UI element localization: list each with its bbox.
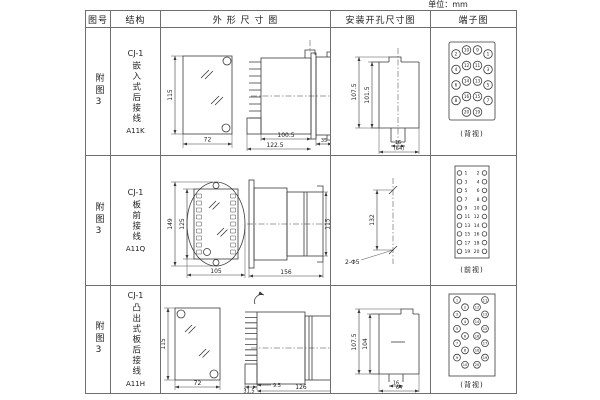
row1-structure: CJ-1 嵌入式后接线 A11K [111, 28, 161, 156]
type-code: A11H [126, 380, 145, 388]
view-label: (前视) [460, 265, 483, 274]
dim-cut-outer: 107.5 [351, 333, 358, 350]
row1-install-cell: 107.5 101.5 16 (64) [331, 28, 431, 156]
terminal-number: 11 [465, 214, 471, 220]
datasheet-page: 单位：mm 图号 结构 外 形 尺 寸 图 安装开孔尺寸图 端子图 附图3 CJ… [0, 0, 600, 400]
row1-terminal-cell: (背视) 246810121416209111315191357 [431, 28, 516, 156]
dim-front-height: 115 [161, 338, 167, 350]
terminal-number: 14 [464, 78, 470, 83]
terminal-diagram-a11q: (前视) 1234567891011121314151617181920 [431, 156, 516, 286]
terminal-number: 2 [477, 170, 480, 176]
terminal-circle [457, 188, 462, 193]
terminal-number: 19 [465, 249, 471, 255]
row1-fig-no: 附图3 [86, 28, 111, 156]
terminal-number: 5 [465, 188, 468, 194]
terminal-number: 15 [465, 231, 471, 237]
front-view-body [183, 56, 232, 134]
terminal-number: 17 [465, 240, 471, 246]
dim-cut-width: (64) [393, 146, 403, 152]
terminal-circle [482, 196, 487, 201]
terminal-circle [482, 205, 487, 210]
terminal-number: 18 [475, 349, 480, 353]
comb-base [245, 364, 257, 384]
terminal-number: 20 [475, 363, 480, 367]
terminal-circle [482, 249, 487, 254]
row3-fig-no: 附图3 [86, 286, 111, 393]
dim-cut-outer: 107.5 [351, 83, 358, 100]
screw-hole [213, 182, 219, 188]
outline-drawing-a11k: 115 72 100.5 122.5 35 [161, 28, 331, 156]
terminal-number: 20 [464, 109, 470, 114]
terminal-plate [449, 294, 495, 376]
type-code: A11K [126, 127, 144, 135]
terminal-number: 1 [465, 170, 468, 176]
terminal-circle [482, 179, 487, 184]
terminal-number: 13 [483, 313, 488, 317]
terminal-circle [457, 240, 462, 245]
terminal-number: 2 [455, 51, 458, 56]
row2-structure: CJ-1 板前接线 A11Q [111, 156, 161, 286]
terminal-number: 13 [475, 78, 481, 83]
screw-hole [177, 310, 185, 318]
dim-body-depth: 100.5 [277, 132, 294, 139]
terminal-number: 7 [487, 98, 490, 103]
terminal-number: 18 [474, 240, 480, 246]
screw-hole [203, 248, 210, 255]
terminal-number: 3 [456, 313, 458, 317]
dimension-table: 图号 结构 外 形 尺 寸 图 安装开孔尺寸图 端子图 附图3 CJ-1 嵌入式… [85, 10, 517, 394]
model-text: CJ-1 [128, 291, 144, 300]
row3-structure: CJ-1 凸出式板后接线 A11H [111, 286, 161, 393]
terminal-number: 5 [487, 82, 490, 87]
terminal-number: 8 [464, 349, 467, 353]
terminal-number: 10 [474, 205, 480, 211]
terminal-number: 17 [483, 341, 488, 345]
terminal-number: 9 [476, 47, 479, 52]
dim-rear-depth: 35 [320, 138, 326, 144]
terminal-circle [457, 222, 462, 227]
terminal-number: 10 [464, 47, 470, 52]
terminal-number: 7 [456, 341, 458, 345]
dim-comb-depth: 31.5 [243, 389, 254, 394]
row2-terminal-cell: (前视) 1234567891011121314151617181920 [431, 156, 516, 286]
row2-install-cell: 132 2-Φ5 [331, 156, 431, 286]
terminal-circle [457, 249, 462, 254]
row3-terminal-cell: (背视) 1234567891011121314151617181920 [431, 286, 516, 393]
dim-front-width: 72 [203, 136, 211, 143]
cutout-outline [371, 57, 419, 128]
front-view-body [175, 308, 220, 380]
terminal-circle [482, 240, 487, 245]
fig-no-text: 附图3 [94, 202, 103, 239]
terminal-circle [482, 188, 487, 193]
terminal-comb [245, 312, 257, 361]
fig-no-text: 附图3 [94, 73, 103, 110]
terminal-number: 15 [475, 94, 481, 99]
terminal-number: 1 [487, 51, 490, 56]
terminal-number: 12 [464, 63, 470, 68]
slash-mark [201, 70, 223, 105]
col-header-outline: 外 形 尺 寸 图 [161, 11, 331, 28]
view-label: (背视) [460, 380, 483, 389]
unit-label: 单位：mm [408, 0, 488, 10]
dim-front-width: 105 [210, 268, 222, 275]
terminal-number: 19 [483, 356, 488, 360]
model-text: CJ-1 [128, 188, 144, 197]
dim-front-height: 149 [167, 218, 174, 230]
screw-hole [213, 259, 219, 265]
terminal-circle [457, 196, 462, 201]
flange-oval [187, 182, 245, 266]
dim-front-inner: 125 [179, 218, 186, 230]
terminal-diagram-a11k: (背视) 246810121416209111315191357 [431, 28, 516, 156]
install-holes-a11q: 132 2-Φ5 [331, 156, 431, 286]
top-clip [305, 50, 315, 58]
terminal-circle [457, 231, 462, 236]
terminal-number: 19 [475, 109, 481, 114]
terminal-circle [457, 170, 462, 175]
terminal-number: 8 [477, 196, 480, 202]
dim-gap: 9.5 [273, 383, 281, 389]
terminal-diagram-a11h: (背视) 1234567891011121314151617181920 [431, 286, 516, 393]
terminal-number: 5 [456, 327, 458, 331]
terminal-number: 15 [483, 327, 488, 331]
dim-cut-inner: 101.5 [364, 86, 371, 103]
dim-front-height: 115 [167, 89, 174, 101]
terminal-strip-left [196, 194, 201, 254]
terminal-circle [482, 222, 487, 227]
terminal-number: 7 [465, 196, 468, 202]
install-cutout-a11h: 107.5 104 16 64 [331, 286, 431, 393]
terminal-number: 20 [474, 249, 480, 255]
terminal-number: 13 [465, 222, 471, 228]
terminal-number: 14 [475, 320, 480, 324]
terminal-circle [482, 170, 487, 175]
col-header-fig-no: 图号 [86, 11, 111, 28]
terminal-circle [457, 205, 462, 210]
dim-total-depth: 122.5 [266, 142, 283, 149]
terminal-number: 16 [475, 334, 480, 338]
terminal-number: 9 [465, 205, 468, 211]
terminal-circle [482, 231, 487, 236]
slash-mark [185, 325, 210, 358]
leader-line [361, 250, 393, 260]
dim-cut-inner: 104 [362, 338, 369, 350]
terminal-number: 2 [464, 305, 466, 309]
terminal-number: 9 [456, 356, 459, 360]
terminal-circle [482, 214, 487, 219]
front-view-body [194, 189, 238, 259]
row1-outline-cell: 115 72 100.5 122.5 35 [161, 28, 331, 156]
terminal-number: 8 [455, 98, 458, 103]
dim-length: 126 [295, 384, 307, 391]
terminal-number: 4 [477, 179, 480, 185]
fig-no-text: 附图3 [94, 321, 103, 358]
screw-hole [223, 57, 231, 65]
terminal-number: 14 [474, 222, 480, 228]
structure-desc: 凸出式板后接线 [131, 303, 140, 377]
row3-outline-cell: 115 72 9.5 31.5 126 [161, 286, 331, 393]
structure-desc: 嵌入式后接线 [131, 61, 140, 124]
slash-mark [209, 201, 228, 237]
col-header-install: 安装开孔尺寸图 [331, 11, 431, 28]
terminal-number: 16 [474, 231, 480, 237]
terminal-comb [249, 62, 261, 118]
terminal-number: 1 [456, 298, 458, 302]
view-label: (背视) [460, 129, 483, 138]
terminal-strip-right [230, 194, 235, 254]
terminal-number: 6 [477, 188, 480, 194]
terminal-number: 3 [487, 67, 490, 72]
dim-length: 156 [280, 269, 292, 276]
terminal-number: 4 [464, 320, 467, 324]
terminal-number: 12 [475, 305, 480, 309]
outline-drawing-a11h: 115 72 9.5 31.5 126 [161, 286, 331, 393]
terminal-circle [457, 179, 462, 184]
col-header-terminal: 端子图 [431, 11, 516, 28]
model-text: CJ-1 [128, 49, 144, 58]
dim-cut-width: 64 [395, 385, 401, 391]
terminal-number: 6 [455, 82, 458, 87]
structure-desc: 板前接线 [131, 200, 140, 242]
col-header-structure: 结构 [111, 11, 161, 28]
terminal-number: 6 [464, 334, 467, 338]
screw-hole [222, 124, 230, 132]
dim-hole-span: 132 [369, 214, 376, 226]
terminal-number: 11 [483, 298, 488, 302]
rotate-arrow [254, 295, 263, 304]
row2-fig-no: 附图3 [86, 156, 111, 286]
outline-drawing-a11q: 149 125 105 156 115 [161, 156, 331, 286]
row2-outline-cell: 149 125 105 156 115 [161, 156, 331, 286]
terminal-number: 10 [463, 363, 468, 367]
terminal-number: 4 [455, 67, 458, 72]
dim-front-width: 72 [193, 380, 201, 387]
terminal-number: 3 [465, 179, 468, 185]
terminal-circle [457, 214, 462, 219]
cutout-outline [371, 309, 419, 374]
comb-base [247, 118, 261, 134]
screw-hole [210, 370, 218, 378]
dim-side-height: 115 [324, 218, 331, 230]
row3-install-cell: 107.5 104 16 64 [331, 286, 431, 393]
install-cutout-a11k: 107.5 101.5 16 (64) [331, 28, 431, 156]
type-code: A11Q [126, 245, 145, 253]
terminal-number: 12 [474, 214, 480, 220]
terminal-number: 11 [475, 63, 481, 68]
terminal-number: 16 [464, 94, 470, 99]
dim-hole-size: 2-Φ5 [345, 259, 360, 266]
